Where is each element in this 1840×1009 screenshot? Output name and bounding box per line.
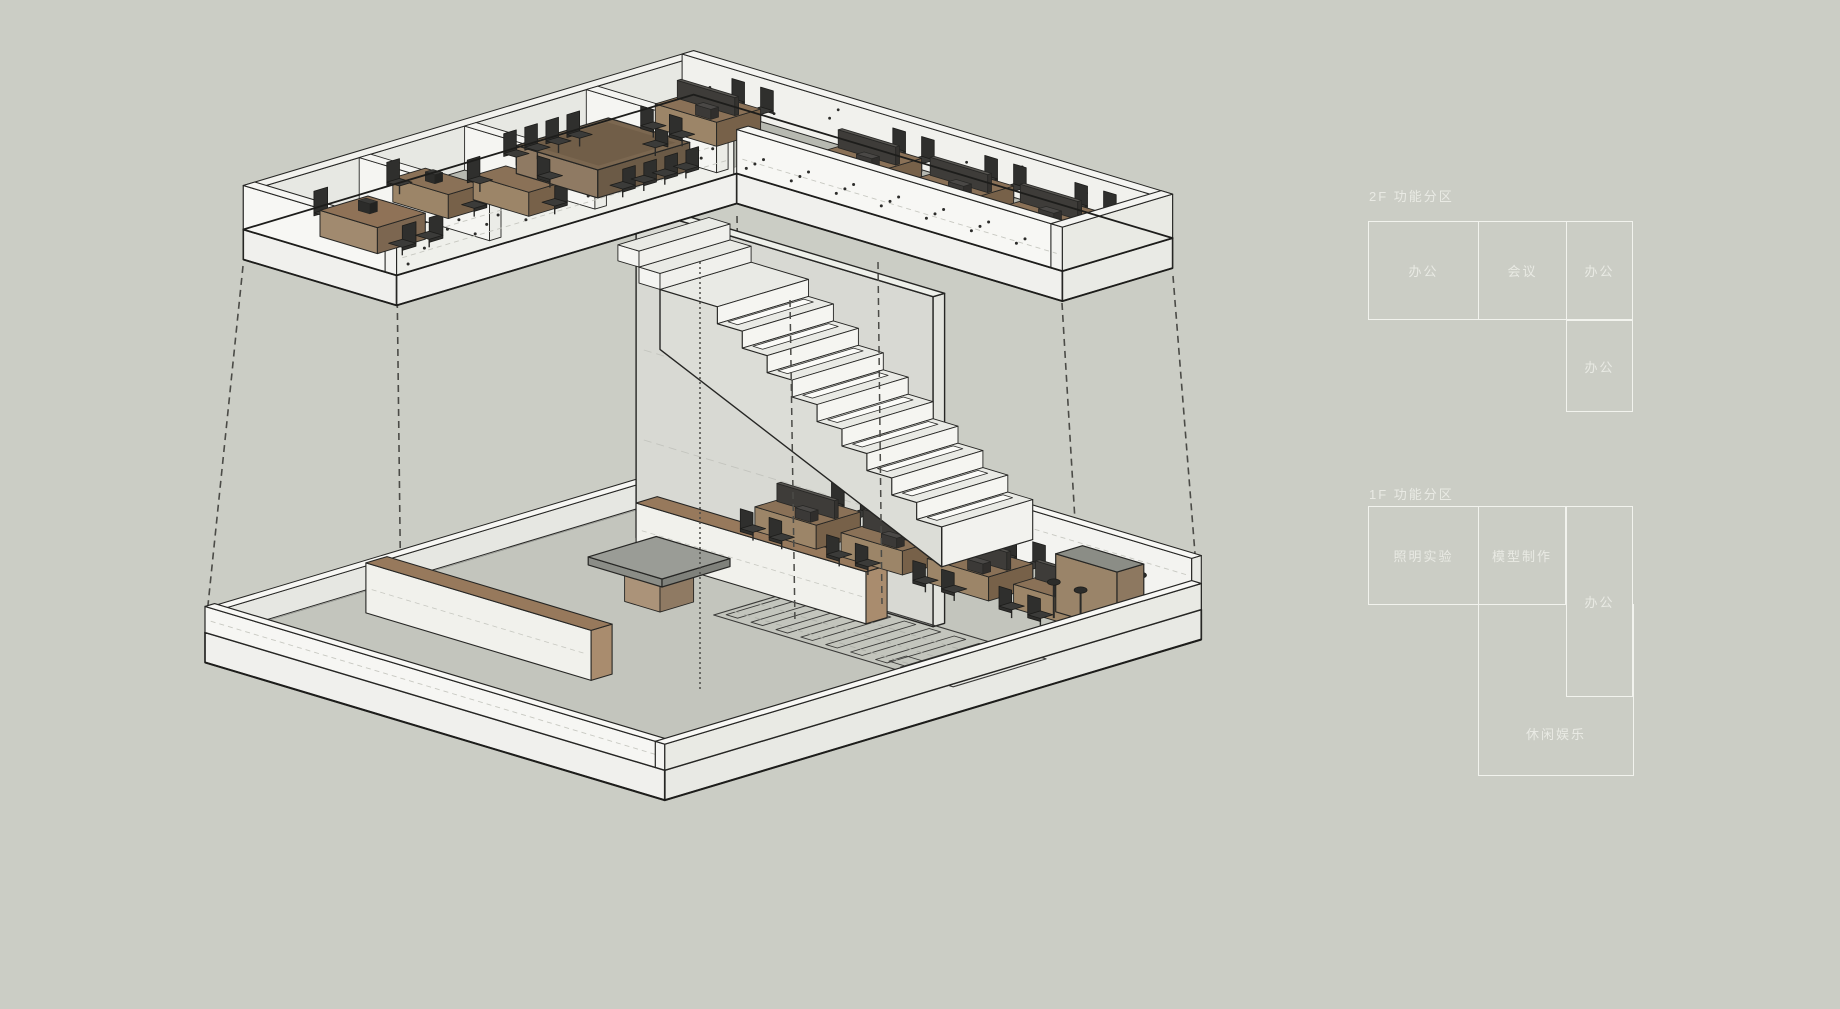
legend-1f-title: 1F 功能分区: [1369, 484, 1454, 503]
zone-1f-model-making: 模型制作: [1478, 506, 1566, 605]
zone-2f-office-right: 办公: [1566, 221, 1633, 320]
zone-2f-office-left: 办公: [1368, 221, 1479, 320]
legend-2f-title: 2F 功能分区: [1369, 186, 1454, 205]
zone-1f-office: 办公: [1566, 506, 1633, 697]
exploded-axon-canvas: 2F 功能分区 办公 会议 办公 办公 1F 功能分区 照明实验 模型制作 休闲…: [0, 0, 1840, 1009]
zone-2f-office-lower: 办公: [1566, 320, 1633, 412]
zone-2f-meeting: 会议: [1478, 221, 1567, 320]
zone-1f-lighting-lab: 照明实验: [1368, 506, 1479, 605]
axonometric-model: [0, 0, 1840, 1009]
